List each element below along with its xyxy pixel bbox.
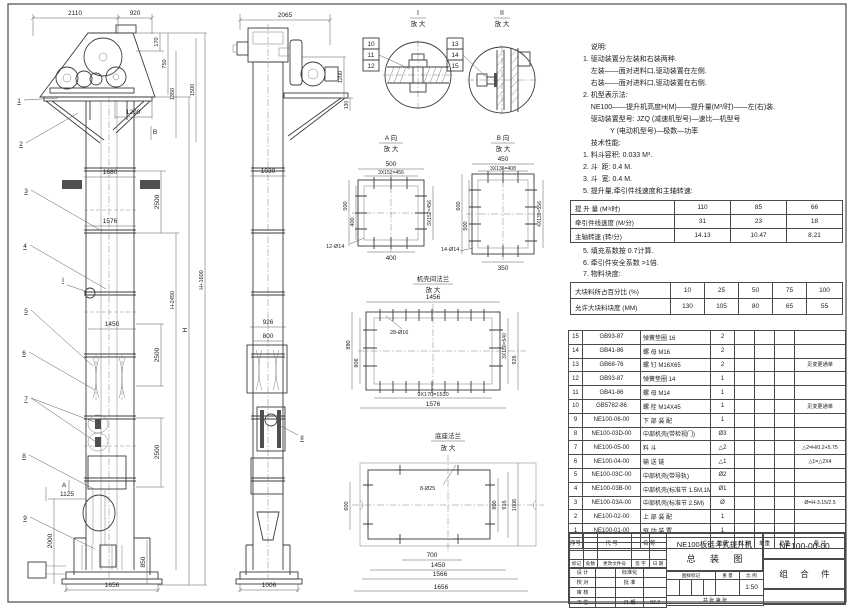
table-cell: NE100-03A-00 <box>583 496 641 510</box>
dim-label: 500 <box>463 221 469 230</box>
table-cell <box>755 358 775 372</box>
dim-label: 1125 <box>60 491 74 498</box>
dim-label: 600 <box>344 501 350 510</box>
table-cell: 14.13 <box>675 229 731 243</box>
dim-label: 500 <box>343 201 349 210</box>
table-cell: 10 <box>671 283 705 299</box>
table-cell <box>735 372 755 386</box>
detail-ii: II 放 大 13 14 15 <box>447 10 537 115</box>
notes-section-2: 5. 填充系数按 0.7计算.6. 牵引件安全系数 >1倍.7. 物料块度: <box>583 246 845 281</box>
dim-label: 2065 <box>278 12 293 19</box>
table-cell: 2 <box>711 344 735 358</box>
table-cell: GB5782-86 <box>583 399 641 413</box>
table-row: 大块料所占百分比 (%)10255075100 <box>571 283 843 299</box>
table-cell <box>755 413 775 427</box>
table-cell <box>735 386 755 400</box>
table-row: 15GB93-87弹簧垫圈 162 <box>569 331 846 345</box>
table-cell: 9 <box>569 413 583 427</box>
table-cell <box>775 344 795 358</box>
table-cell <box>735 455 755 469</box>
table-cell <box>755 399 775 413</box>
table-cell: 下 部 装 配 <box>641 413 711 427</box>
table-cell: 100 <box>807 283 843 299</box>
table-cell <box>735 468 755 482</box>
table-cell <box>795 427 846 441</box>
table-cell: 65 <box>773 299 807 315</box>
table-cell: 允许大块料块度 (MM) <box>571 299 671 315</box>
text-line: 1. 驱动装置分左装和右装两种. <box>583 54 845 66</box>
dim-label: 3X136=408 <box>490 166 516 172</box>
table-cell: 130 <box>671 299 705 315</box>
stamp-header: 重 量 <box>716 572 740 580</box>
dim-label: 2500 <box>154 347 161 362</box>
text-line: 7. 物料块度: <box>583 269 845 281</box>
text-line: 左装——面对进料口,驱动装置在左侧. <box>583 66 845 78</box>
table-cell: 2 <box>569 510 583 524</box>
table-cell <box>735 413 755 427</box>
table-cell: Ø1 <box>711 482 735 496</box>
table-cell: GB93-87 <box>583 372 641 386</box>
detail-title: II <box>500 10 504 17</box>
table-cell: △1 <box>711 455 735 469</box>
detail-b-view: B 向 放 大 450 3X136=408 600 500 4X139=556 … <box>441 133 543 272</box>
table-cell <box>755 344 775 358</box>
table-cell: 输 送 链 <box>641 455 711 469</box>
table-cell: 大块料所占百分比 (%) <box>571 283 671 299</box>
revision-area: 标记 处数 更改文件号 签 字 日 期 <box>569 533 667 569</box>
table-cell: 10.47 <box>731 229 787 243</box>
table-row: 主轴转速 (转/分)14.1310.478.21 <box>571 229 843 243</box>
text-line: 5. 填充系数按 0.7计算. <box>583 246 845 258</box>
table-cell: 11 <box>569 386 583 400</box>
dim-label: 4X139=556 <box>537 201 543 227</box>
leader-label: 15 <box>451 63 459 70</box>
title-block: 标记 处数 更改文件号 签 字 日 期 设 计 标准化 校 对 批 准 审 核 <box>568 532 845 604</box>
table-row: 3NE100-03A-00中部机壳(标准节 2.5M)ØØ=H-3.15/2.5 <box>569 496 846 510</box>
table-cell: 上 部 装 配 <box>641 510 711 524</box>
table-cell: 7 <box>569 441 583 455</box>
table-cell <box>755 441 775 455</box>
table-cell <box>755 510 775 524</box>
dim-label: 3X152=456 <box>427 200 433 226</box>
table-row: 5NE100-03C-00中部机壳(带导轨)Ø2 <box>569 468 846 482</box>
title-block-spare-cell <box>763 589 846 605</box>
dim-label: 1456 <box>426 294 441 301</box>
stamp-header: 图样标记 <box>667 572 716 580</box>
dim-label: 1200 <box>338 71 344 83</box>
stamp-area: 图样标记 重 量 比 例 1:50 共 张 第 张 <box>666 571 764 606</box>
table-cell <box>735 399 755 413</box>
section-marker-a: A <box>62 482 67 489</box>
table-cell: NE100-03C-00 <box>583 468 641 482</box>
dim-label: 400 <box>386 255 397 262</box>
table-cell: 31 <box>675 215 731 229</box>
dim-label: 1450 <box>105 321 120 328</box>
table-row: 10GB5782-86螺 栓 M14X451见变更通单 <box>569 399 846 413</box>
notes-section: 说明:1. 驱动装置分左装和右装两种. 左装——面对进料口,驱动装置在左侧. 右… <box>583 42 845 198</box>
dim-label: 170 <box>154 37 160 46</box>
detail-subtitle: 放 大 <box>496 144 511 153</box>
table-cell: 110 <box>675 201 731 215</box>
dim-label: 3X180=540 <box>502 333 508 359</box>
dim-label: 2500 <box>154 194 161 209</box>
revision-row <box>570 551 667 560</box>
dim-label: 2500 <box>154 444 161 459</box>
text-line: 技术性能: <box>583 138 845 150</box>
detail-subtitle: 放 大 <box>411 19 426 28</box>
table-cell: 螺 母 M14 <box>641 386 711 400</box>
table-cell: 10 <box>569 399 583 413</box>
table-cell: NE100-06-00 <box>583 413 641 427</box>
dim-label: 806 <box>354 358 360 367</box>
detail-marker-ii: II <box>300 435 304 442</box>
dim-label: 12-Ø14 <box>326 244 344 250</box>
table-cell <box>735 358 755 372</box>
table-cell: NE100-02-00 <box>583 510 641 524</box>
table-cell <box>795 331 846 345</box>
table-cell: GB93-87 <box>583 331 641 345</box>
table-cell <box>735 331 755 345</box>
table-cell: 85 <box>731 201 787 215</box>
role-label: 校 对 <box>570 577 596 587</box>
dim-label: H-2450 <box>170 291 176 309</box>
text-line: NE100——提升机高度H(M)——提升量(M³/时)——左(右)装. <box>583 102 845 114</box>
detail-subtitle: 放 大 <box>426 285 441 294</box>
table-cell <box>735 441 755 455</box>
table-cell <box>735 427 755 441</box>
dim-label: 1450 <box>431 562 446 569</box>
leader-label: 12 <box>367 63 375 70</box>
table-cell: 螺 母 M16 <box>641 344 711 358</box>
text-line: Y (电动机型号)—极数—功率 <box>583 126 845 138</box>
table-cell <box>735 510 755 524</box>
table-cell: 15 <box>569 331 583 345</box>
table-cell: 1 <box>711 510 735 524</box>
dim-label: 1576 <box>426 401 441 408</box>
dim-label: 350 <box>498 265 509 272</box>
table-cell: 105 <box>705 299 739 315</box>
table-cell: 55 <box>807 299 843 315</box>
revision-row <box>570 534 667 543</box>
table-cell <box>795 482 846 496</box>
table-cell: 13 <box>569 358 583 372</box>
table-cell <box>795 372 846 386</box>
detail-title: 机壳间法兰 <box>417 274 450 283</box>
table-cell <box>755 468 775 482</box>
table-cell: 2 <box>711 331 735 345</box>
table-cell <box>795 468 846 482</box>
date-value: 97.7 <box>644 598 667 608</box>
table-cell: 1 <box>711 413 735 427</box>
dim-label: 28-Ø16 <box>390 330 408 336</box>
dim-label: 1680 <box>103 169 118 176</box>
table-row: 提 升 量 (M³/时)1108566 <box>571 201 843 215</box>
detail-title: I <box>417 10 419 17</box>
drawing-number: NE100-00-00 <box>763 533 846 559</box>
sheet-count-row: 共 张 第 张 <box>667 596 764 606</box>
table-cell <box>795 386 846 400</box>
dim-label: 3X152=456 <box>378 170 404 176</box>
table-cell: GB68-76 <box>583 358 641 372</box>
dim-label: 2110 <box>68 10 82 17</box>
table-cell: 中部机壳(标准节 2.5M) <box>641 496 711 510</box>
table-cell <box>735 496 755 510</box>
revision-row <box>570 542 667 551</box>
detail-subtitle: 放 大 <box>384 144 399 153</box>
table-cell <box>755 427 775 441</box>
text-line: 2. 斗 距: 0.4 M. <box>583 162 845 174</box>
leader-label: 10 <box>367 41 375 48</box>
table-row: 9NE100-06-00下 部 装 配1 <box>569 413 846 427</box>
leader-label: 11 <box>368 52 375 59</box>
table-cell: △2 <box>711 441 735 455</box>
table-cell: 弹簧垫圈 14 <box>641 372 711 386</box>
table-row: 8NE100-03D-00中部机壳(带检视门)Ø3 <box>569 427 846 441</box>
table-row: 11GB41-86螺 母 M141 <box>569 386 846 400</box>
table-cell <box>775 399 795 413</box>
table-cell: Ø3 <box>711 427 735 441</box>
table-cell: 6 <box>569 455 583 469</box>
dim-label: H+1600 <box>199 270 205 289</box>
dim-label: 1566 <box>433 571 448 578</box>
detail-a-view: A 向 放 大 500 3X152=456 500 400 3X152=456 … <box>326 133 433 262</box>
dim-label: 800 <box>263 333 274 340</box>
table-cell <box>755 372 775 386</box>
table-cell: 5 <box>569 468 583 482</box>
signature-row: 审 核 <box>570 587 667 597</box>
dim-label: 1576 <box>103 218 118 225</box>
stamp-header: 比 例 <box>740 572 764 580</box>
table-row: 6NE100-04-00输 送 链△1△1=△2X4 <box>569 455 846 469</box>
side-view <box>233 14 353 592</box>
role-label: 标准化 <box>616 567 644 577</box>
table-cell: NE100-03D-00 <box>583 427 641 441</box>
dim-label: 926 <box>263 319 274 326</box>
table-cell <box>775 413 795 427</box>
role-label: 日 期 <box>616 598 644 608</box>
drawing-subtitle: 总 装 图 <box>680 552 748 565</box>
dim-label: 800 <box>492 500 498 509</box>
drawing-sheet: 2110 920 170 750 1350 1500 1200 1680 250… <box>0 0 850 609</box>
dim-label: 1006 <box>512 499 518 511</box>
text-line: 5. 提升量,牵引件线速度和主轴转速: <box>583 186 845 198</box>
leader-label: 14 <box>451 52 459 59</box>
table-row: 14GB41-86螺 母 M162 <box>569 344 846 358</box>
dim-label: 1500 <box>190 84 196 96</box>
table-cell <box>775 468 795 482</box>
dim-label: 130 <box>344 101 350 110</box>
table-cell <box>775 372 795 386</box>
detail-title: B 向 <box>497 133 510 142</box>
table-cell <box>755 455 775 469</box>
table-cell <box>755 496 775 510</box>
table-cell: 8.21 <box>787 229 843 243</box>
text-line: 1. 料斗容积: 0.033 M³. <box>583 150 845 162</box>
table-row: 7NE100-05-00料 斗△2△2=H/0.2+5.75 <box>569 441 846 455</box>
table-cell: NE100-03B-00 <box>583 482 641 496</box>
table-cell: 50 <box>739 283 773 299</box>
lift-capacity-table: 提 升 量 (M³/时)1108566牵引件线速度 (M/分)312318主轴转… <box>570 200 843 243</box>
table-cell <box>775 331 795 345</box>
leader-label: 8 <box>22 453 26 460</box>
table-cell: 18 <box>787 215 843 229</box>
table-cell: Ø <box>711 496 735 510</box>
table-cell: 14 <box>569 344 583 358</box>
table-cell: Ø=H-3.15/2.5 <box>795 496 846 510</box>
table-cell: Ø2 <box>711 468 735 482</box>
leader-label: 9 <box>23 515 27 522</box>
table-cell: 见变更通单 <box>795 399 846 413</box>
table-row: 4NE100-03B-00中部机壳(标准节 1.5M,1M)Ø1 <box>569 482 846 496</box>
leader-label: 13 <box>451 41 459 48</box>
table-cell <box>775 482 795 496</box>
table-cell: 中部机壳(标准节 1.5M,1M) <box>641 482 711 496</box>
table-cell: 1 <box>711 386 735 400</box>
drawing-title: NE100板链斗式提升机 <box>677 539 752 550</box>
table-cell <box>755 482 775 496</box>
sheet-count: 共 张 第 张 <box>667 596 764 606</box>
table-cell: 1 <box>711 372 735 386</box>
front-view <box>24 14 207 592</box>
role-label: 工 艺 <box>570 598 596 608</box>
dim-label: 14-Ø14 <box>441 247 459 253</box>
dim-label: H <box>182 327 189 332</box>
table-cell: GB41-86 <box>583 386 641 400</box>
signature-row: 设 计 标准化 <box>570 567 667 577</box>
dim-label: 600 <box>456 201 462 210</box>
detail-subtitle: 放 大 <box>495 19 510 28</box>
table-cell: 弹簧垫圈 16 <box>641 331 711 345</box>
table-cell <box>755 331 775 345</box>
table-cell: NE100-05-00 <box>583 441 641 455</box>
dim-label: 500 <box>386 161 397 168</box>
role-label: 批 准 <box>616 577 644 587</box>
table-cell <box>775 455 795 469</box>
table-cell: 12 <box>569 372 583 386</box>
dim-label: 1006 <box>262 582 277 589</box>
text-line: 3. 斗 宽: 0.4 M. <box>583 174 845 186</box>
table-cell <box>775 386 795 400</box>
table-cell: 2 <box>711 358 735 372</box>
role-label: 设 计 <box>570 567 596 577</box>
table-cell: 主轴转速 (转/分) <box>571 229 675 243</box>
leader-label: 4 <box>23 243 27 250</box>
table-row: 2NE100-02-00上 部 装 配1 <box>569 510 846 524</box>
table-cell <box>775 427 795 441</box>
table-cell <box>795 510 846 524</box>
dim-label: 880 <box>346 340 352 349</box>
dim-label: 450 <box>498 156 509 163</box>
dim-label: 1656 <box>105 582 120 589</box>
table-row: 允许大块料块度 (MM)130105806555 <box>571 299 843 315</box>
table-cell <box>795 344 846 358</box>
table-cell: 23 <box>731 215 787 229</box>
lump-size-table: 大块料所占百分比 (%)10255075100允许大块料块度 (MM)13010… <box>570 282 843 315</box>
dim-label: 2000 <box>47 533 54 548</box>
table-cell: 牵引件线速度 (M/分) <box>571 215 675 229</box>
text-line: 6. 牵引件安全系数 >1倍. <box>583 258 845 270</box>
leader-label: 3 <box>24 188 28 195</box>
table-cell: 4 <box>569 482 583 496</box>
table-cell <box>735 482 755 496</box>
dim-label: 700 <box>427 552 438 559</box>
text-line: 驱动装置型号: JZQ (减速机型号)—速比—机型号 <box>583 114 845 126</box>
dim-label: 1350 <box>170 88 176 100</box>
dim-label: 1656 <box>434 584 449 591</box>
leader-label: 1 <box>17 98 21 105</box>
table-cell: 螺 栓 M14X45 <box>641 399 711 413</box>
table-cell: 80 <box>739 299 773 315</box>
detail-marker-i: I <box>62 277 64 284</box>
scale-value: 1:50 <box>740 580 764 596</box>
dim-label: 926 <box>512 355 518 364</box>
drawing-title-box: NE100板链斗式提升机 总 装 图 <box>666 533 763 571</box>
table-cell: 75 <box>773 283 807 299</box>
table-cell <box>795 413 846 427</box>
dim-label: 9X170=1530 <box>417 392 448 398</box>
detail-title: A 向 <box>385 133 397 142</box>
table-cell: 1 <box>711 399 735 413</box>
table-cell: 66 <box>787 201 843 215</box>
detail-base-view: 底座法兰 放 大 8-Ø25 600 800 916 1006 700 1450… <box>344 431 544 591</box>
table-cell <box>755 386 775 400</box>
table-row: 牵引件线速度 (M/分)312318 <box>571 215 843 229</box>
table-row: 12GB93-87弹簧垫圈 141 <box>569 372 846 386</box>
stamp-value-row: 1:50 <box>667 580 764 596</box>
leader-label: 7 <box>24 396 28 403</box>
table-cell <box>775 496 795 510</box>
table-cell: 料 斗 <box>641 441 711 455</box>
detail-subtitle: 放 大 <box>441 443 456 452</box>
stamp-header-row: 图样标记 重 量 比 例 <box>667 572 764 580</box>
table-cell: 中部机壳(带导轨) <box>641 468 711 482</box>
section-marker-b: B <box>153 129 157 136</box>
dim-label: 750 <box>162 59 168 68</box>
text-line: 2. 机型表示法: <box>583 90 845 102</box>
leader-label: 6 <box>22 350 26 357</box>
table-cell: NE100-04-00 <box>583 455 641 469</box>
dim-label: 8-Ø25 <box>420 486 435 492</box>
table-cell: 中部机壳(带检视门) <box>641 427 711 441</box>
leader-label: 5 <box>24 308 28 315</box>
table-cell <box>775 358 795 372</box>
leader-label: 2 <box>19 141 23 148</box>
table-row: 13GB68-76螺 钉 M16X652见变更通单 <box>569 358 846 372</box>
table-cell: 见变更通单 <box>795 358 846 372</box>
dim-label: 1200 <box>126 109 141 116</box>
table-cell: GB41-86 <box>583 344 641 358</box>
table-cell: 提 升 量 (M³/时) <box>571 201 675 215</box>
table-cell <box>775 441 795 455</box>
table-cell <box>775 510 795 524</box>
dim-label: 920 <box>130 10 141 17</box>
role-label: 审 核 <box>570 587 596 597</box>
table-cell: 螺 钉 M16X65 <box>641 358 711 372</box>
detail-flange-view: 机壳间法兰 放 大 1456 28-Ø16 880 806 3X180=540 … <box>346 274 526 408</box>
bom-table: 15GB93-87弹簧垫圈 16214GB41-86螺 母 M16213GB68… <box>568 330 846 549</box>
detail-title: 底座法兰 <box>435 431 462 440</box>
signature-row: 校 对 批 准 <box>570 577 667 587</box>
text-line: 说明: <box>583 42 845 54</box>
dim-label: 400 <box>350 217 356 226</box>
detail-i: I 放 大 10 11 12 <box>363 10 453 110</box>
dim-label: 850 <box>140 556 147 567</box>
table-cell: △2=H/0.2+5.75 <box>795 441 846 455</box>
side-view-labels: 2065 1200 130 1030 926 800 1006 II <box>261 12 350 589</box>
dim-label: 1030 <box>261 168 276 175</box>
table-cell: 8 <box>569 427 583 441</box>
dim-label: 916 <box>502 500 508 509</box>
